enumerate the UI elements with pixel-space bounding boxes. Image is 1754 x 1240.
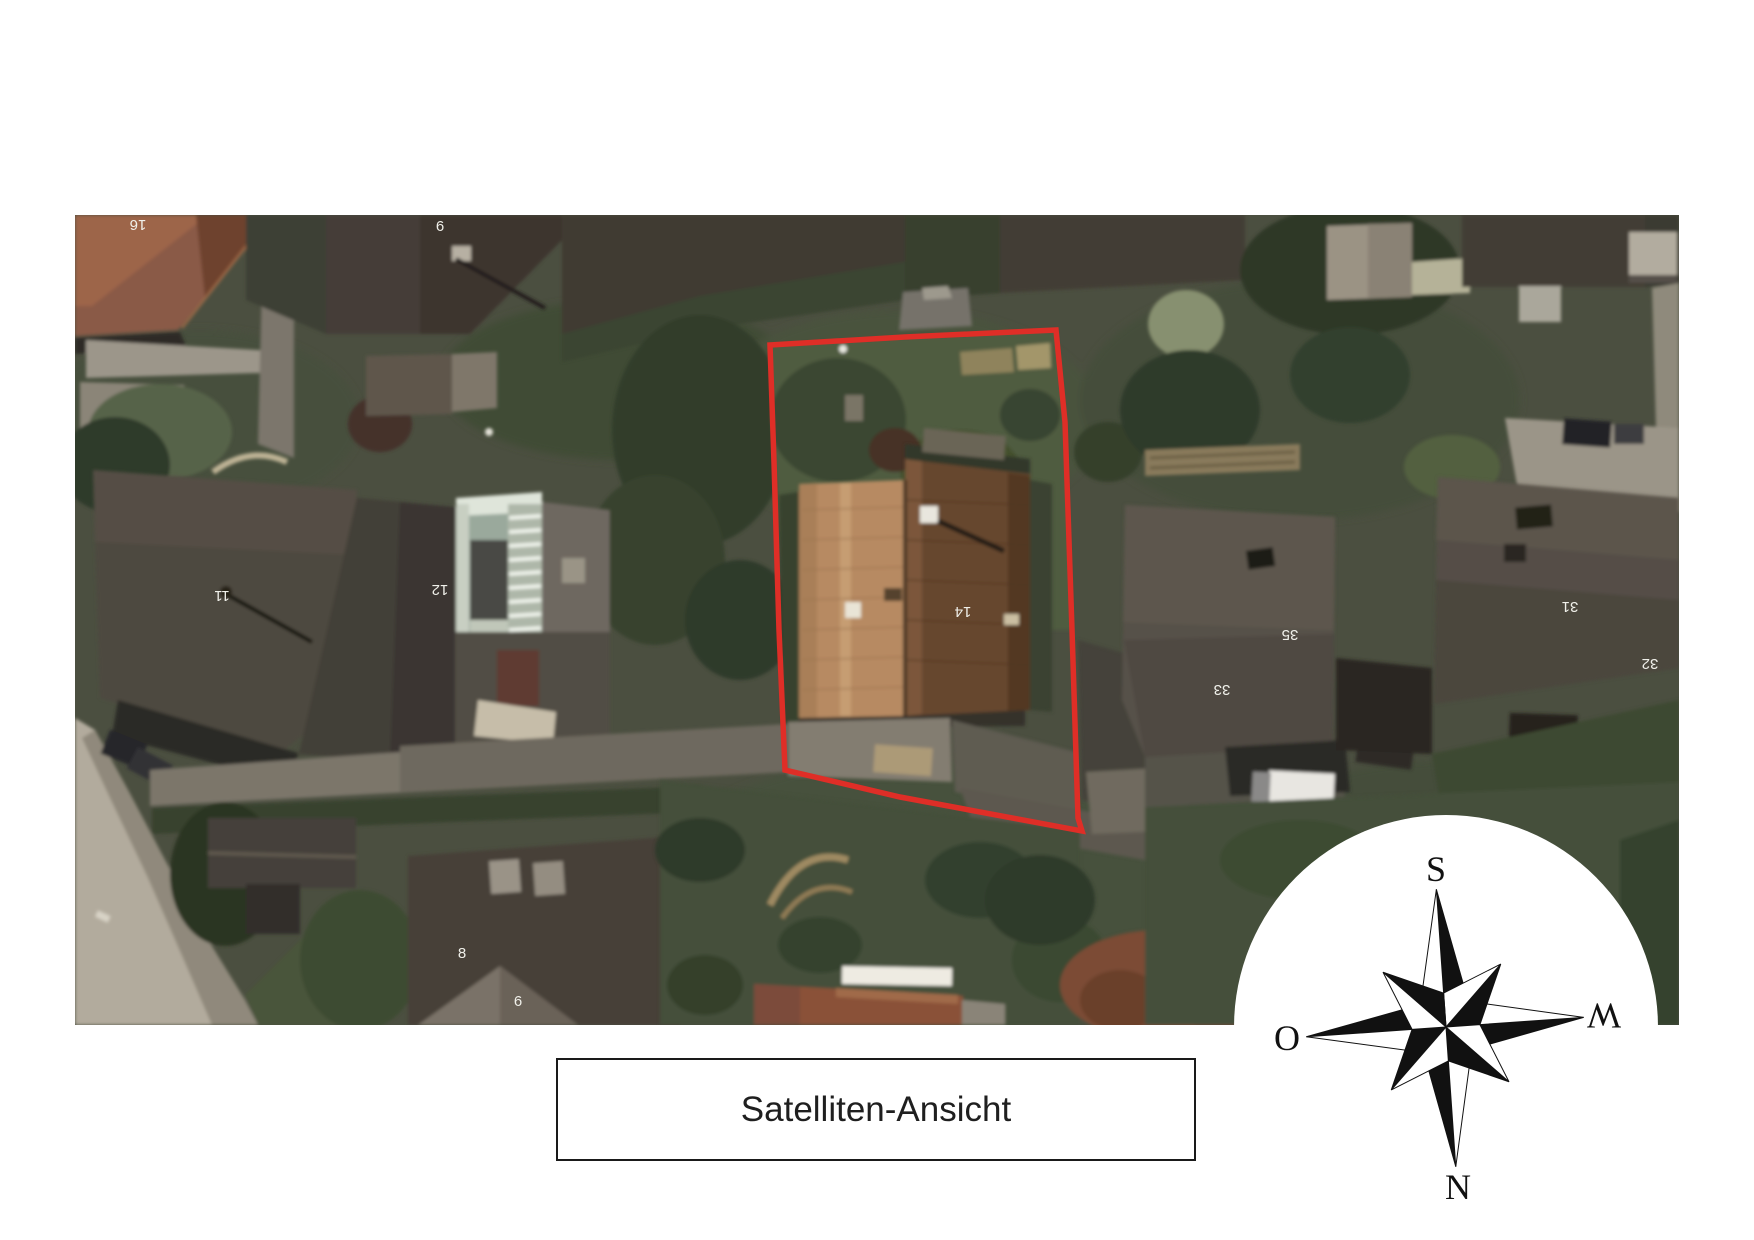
svg-text:N: N — [1445, 1167, 1471, 1207]
svg-text:O: O — [1274, 1018, 1300, 1058]
svg-text:6: 6 — [436, 218, 444, 235]
svg-text:12: 12 — [432, 581, 449, 598]
svg-text:11: 11 — [214, 587, 230, 604]
svg-text:S: S — [1426, 849, 1446, 889]
svg-text:14: 14 — [955, 603, 972, 620]
svg-text:31: 31 — [1562, 598, 1579, 615]
svg-text:16: 16 — [130, 216, 147, 233]
svg-text:8: 8 — [458, 945, 466, 962]
svg-text:W: W — [1587, 996, 1621, 1036]
svg-text:6: 6 — [514, 993, 522, 1010]
svg-text:35: 35 — [1282, 626, 1299, 643]
svg-text:33: 33 — [1214, 681, 1231, 698]
svg-text:32: 32 — [1642, 655, 1659, 672]
